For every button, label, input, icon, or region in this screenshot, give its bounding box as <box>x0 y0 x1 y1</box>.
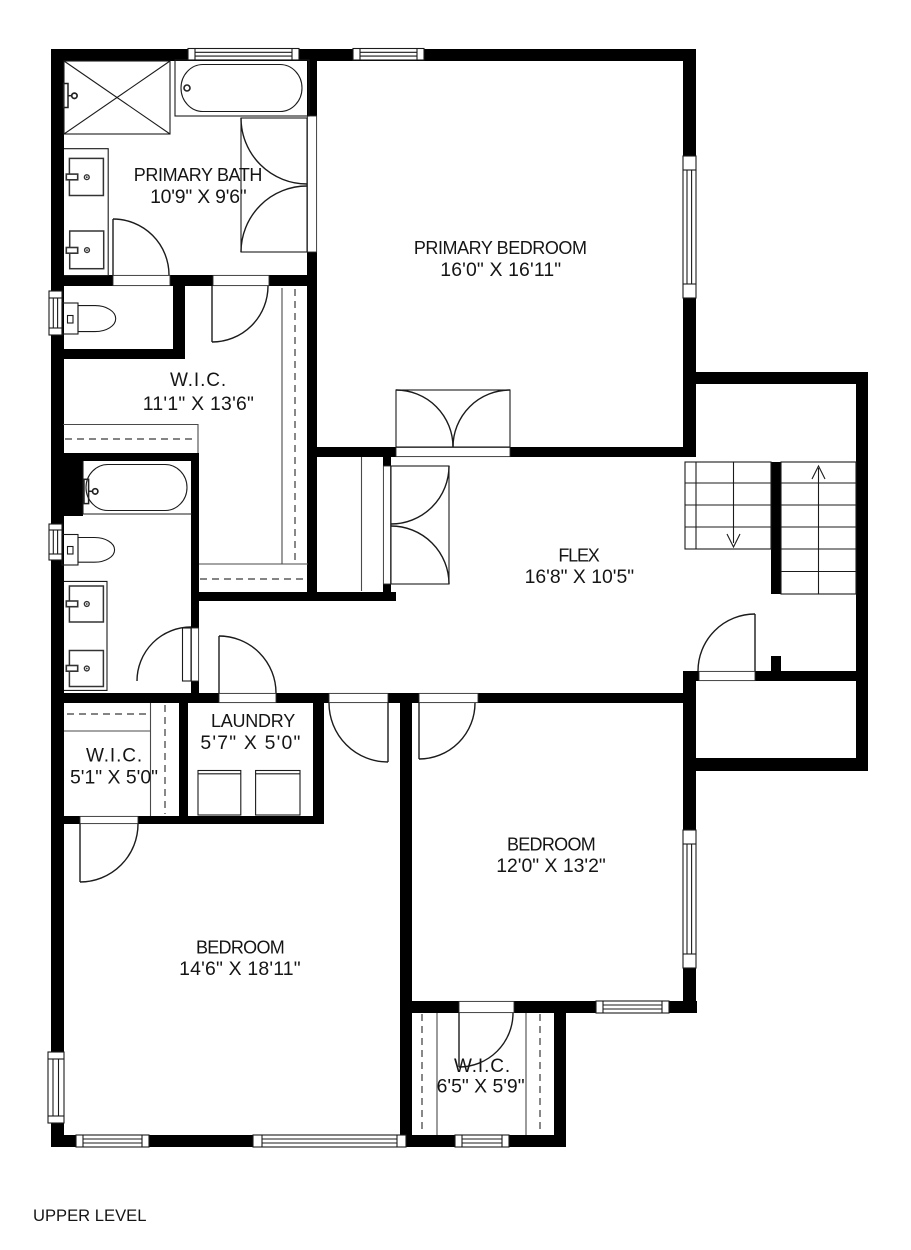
svg-text:12'0" X 13'2": 12'0" X 13'2" <box>496 855 606 877</box>
svg-text:16'8" X 10'5": 16'8" X 10'5" <box>525 566 635 588</box>
svg-text:16'0" X 16'11": 16'0" X 16'11" <box>440 259 561 281</box>
svg-text:BEDROOM: BEDROOM <box>196 938 284 958</box>
svg-text:5'7" X 5'0": 5'7" X 5'0" <box>200 732 301 754</box>
svg-text:UPPER LEVEL: UPPER LEVEL <box>33 1206 146 1225</box>
svg-text:W.I.C.: W.I.C. <box>454 1056 511 1077</box>
svg-text:14'6" X 18'11": 14'6" X 18'11" <box>179 958 301 980</box>
svg-text:BEDROOM: BEDROOM <box>507 835 595 855</box>
svg-text:10'9" X 9'6": 10'9" X 9'6" <box>150 186 247 208</box>
svg-text:PRIMARY BATH: PRIMARY BATH <box>134 165 262 185</box>
svg-text:11'1" X 13'6": 11'1" X 13'6" <box>143 393 254 415</box>
svg-text:PRIMARY BEDROOM: PRIMARY BEDROOM <box>414 238 587 258</box>
svg-text:LAUNDRY: LAUNDRY <box>211 711 295 731</box>
svg-text:6'5" X 5'9": 6'5" X 5'9" <box>437 1076 525 1098</box>
svg-text:W.I.C.: W.I.C. <box>170 370 227 391</box>
svg-text:5'1" X 5'0": 5'1" X 5'0" <box>70 767 158 789</box>
svg-text:W.I.C.: W.I.C. <box>86 746 143 767</box>
svg-text:FLEX: FLEX <box>558 546 599 566</box>
